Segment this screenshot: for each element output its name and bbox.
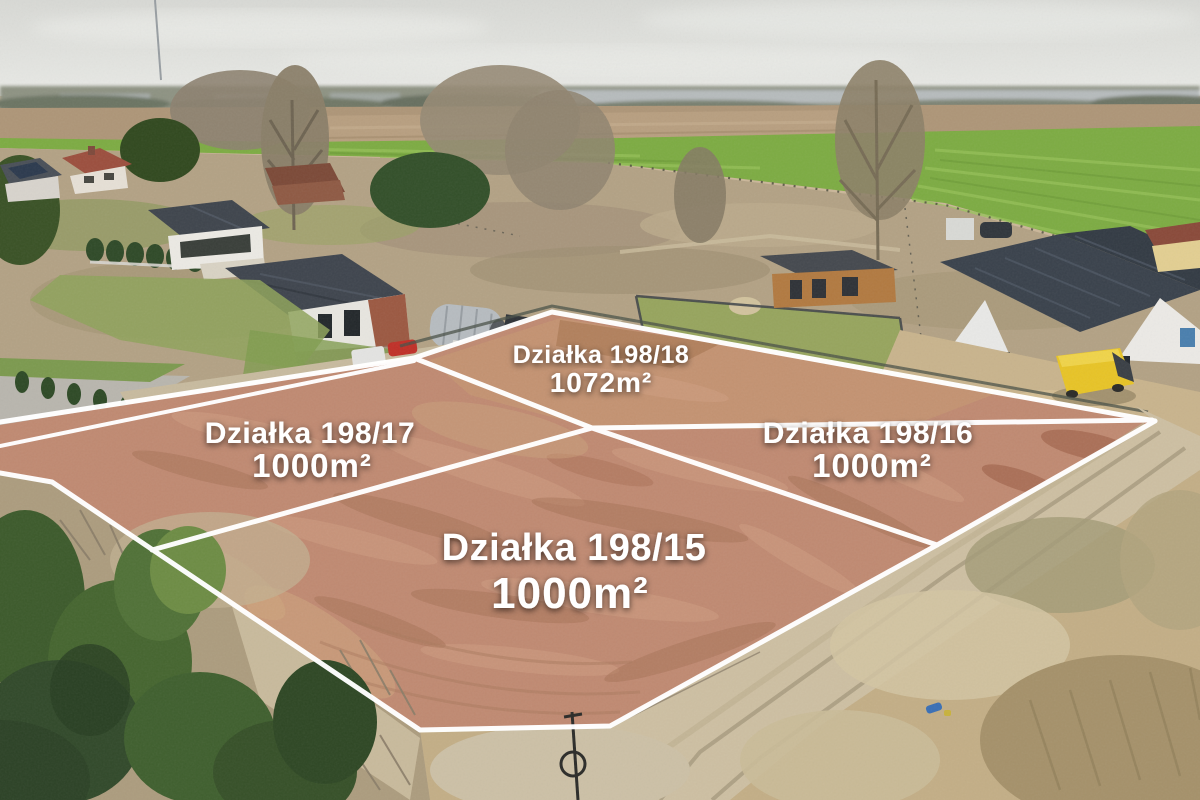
plot-198-16-name: Działka 198/16: [763, 417, 973, 450]
grain-overlay: [0, 0, 1200, 800]
aerial-plot-photo: Działka 198/18 1072m² Działka 198/17 100…: [0, 0, 1200, 800]
plot-198-18-name: Działka 198/18: [513, 341, 690, 369]
plot-198-15-area: 1000m²: [491, 569, 649, 618]
plot-198-17-area: 1000m²: [252, 447, 372, 484]
plot-198-17-name: Działka 198/17: [205, 417, 415, 450]
plot-198-16-area: 1000m²: [812, 447, 932, 484]
plot-198-15-name: Działka 198/15: [442, 527, 707, 569]
photo-canvas: Działka 198/18 1072m² Działka 198/17 100…: [0, 0, 1200, 800]
plot-198-18-area: 1072m²: [550, 367, 653, 398]
